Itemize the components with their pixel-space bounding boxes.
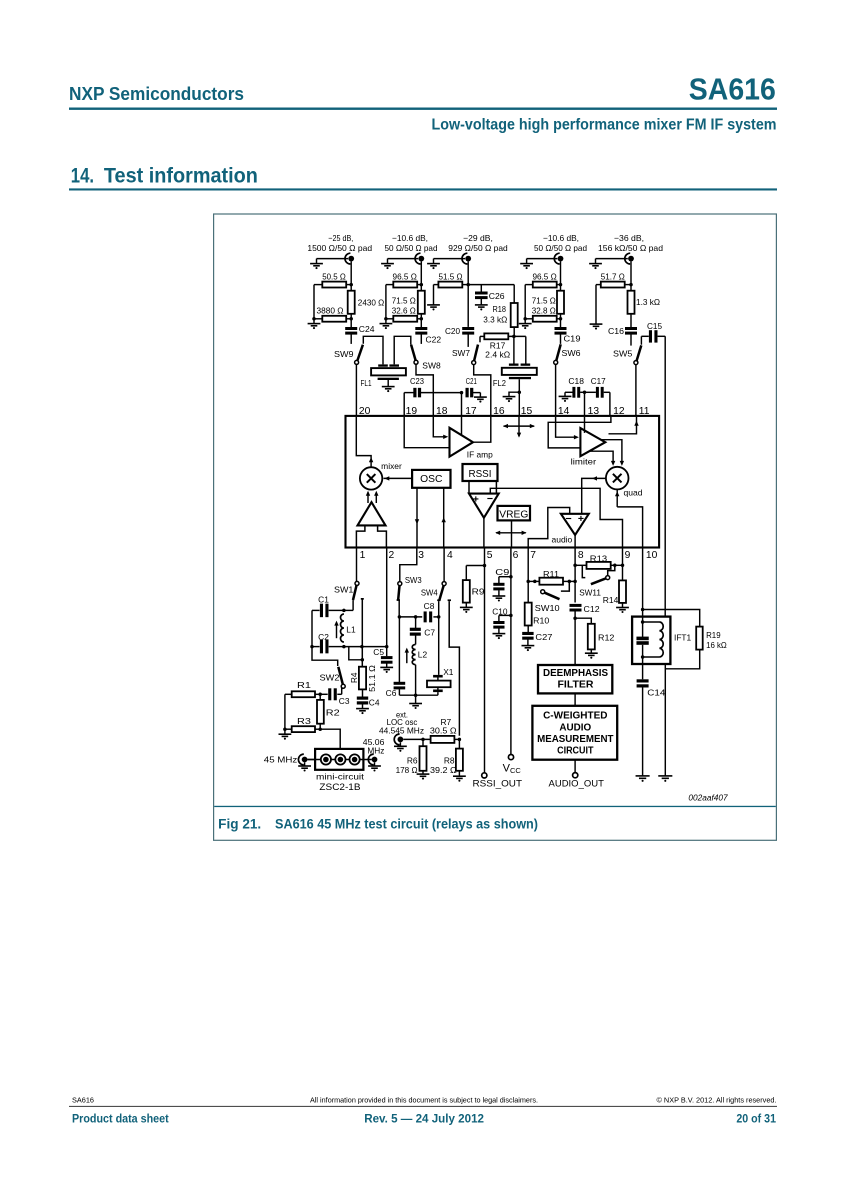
svg-text:6: 6	[513, 550, 519, 561]
svg-text:IFT1: IFT1	[674, 633, 692, 643]
svg-text:C23: C23	[410, 376, 424, 386]
svg-text:1: 1	[360, 550, 366, 561]
svg-text:−25 dB,: −25 dB,	[328, 233, 353, 243]
svg-text:Fig 21.: Fig 21.	[218, 817, 261, 832]
svg-text:71.5 Ω: 71.5 Ω	[532, 295, 556, 305]
svg-text:SW4: SW4	[421, 588, 438, 598]
svg-text:R3: R3	[297, 716, 311, 726]
svg-text:C18: C18	[568, 376, 584, 386]
svg-text:C1: C1	[318, 594, 329, 604]
svg-text:SW1: SW1	[334, 585, 354, 595]
svg-text:ZSC2-1B: ZSC2-1B	[319, 782, 360, 792]
svg-text:50.5 Ω: 50.5 Ω	[322, 272, 346, 282]
svg-text:R12: R12	[598, 632, 615, 642]
svg-text:39.2 Ω: 39.2 Ω	[430, 765, 457, 775]
svg-text:R6: R6	[407, 755, 418, 765]
svg-text:DEEMPHASIS: DEEMPHASIS	[543, 668, 608, 679]
svg-text:C24: C24	[359, 324, 375, 334]
svg-text:51.1 Ω: 51.1 Ω	[368, 665, 377, 692]
svg-text:18: 18	[436, 406, 448, 417]
svg-text:5: 5	[487, 550, 493, 561]
svg-text:20 of 31: 20 of 31	[736, 1112, 776, 1126]
svg-text:NXP Semiconductors: NXP Semiconductors	[69, 84, 244, 104]
svg-text:−: −	[487, 493, 493, 505]
svg-text:71.5 Ω: 71.5 Ω	[392, 295, 416, 305]
svg-text:Test information: Test information	[104, 164, 258, 188]
svg-text:R2: R2	[326, 707, 340, 717]
svg-text:51.7 Ω: 51.7 Ω	[601, 272, 625, 282]
svg-text:96.5 Ω: 96.5 Ω	[393, 272, 417, 282]
svg-text:SW3: SW3	[405, 575, 422, 585]
svg-text:SW2: SW2	[320, 672, 340, 682]
svg-text:RSSI: RSSI	[468, 469, 491, 480]
svg-text:96.5 Ω: 96.5 Ω	[532, 272, 556, 282]
svg-text:8: 8	[578, 550, 584, 561]
svg-text:SA616: SA616	[689, 73, 776, 107]
svg-text:178 Ω: 178 Ω	[396, 765, 418, 775]
svg-text:32.8 Ω: 32.8 Ω	[532, 306, 556, 316]
svg-text:CIRCUIT: CIRCUIT	[557, 746, 593, 757]
svg-text:IF amp: IF amp	[467, 450, 493, 459]
svg-text:4: 4	[447, 550, 453, 561]
svg-text:SW7: SW7	[452, 348, 470, 358]
svg-text:Rev. 5 — 24 July 2012: Rev. 5 — 24 July 2012	[364, 1112, 484, 1126]
svg-text:X1: X1	[443, 667, 454, 677]
svg-text:9: 9	[625, 550, 631, 561]
svg-text:FILTER: FILTER	[558, 680, 594, 691]
svg-text:45 MHz: 45 MHz	[264, 755, 298, 765]
svg-text:−10.6 dB,: −10.6 dB,	[543, 233, 579, 243]
svg-text:+: +	[578, 513, 584, 525]
svg-text:C22: C22	[426, 334, 442, 344]
svg-text:mixer: mixer	[381, 462, 402, 471]
svg-text:MHz: MHz	[367, 745, 384, 755]
svg-text:C27: C27	[535, 632, 552, 642]
svg-text:C9: C9	[495, 567, 509, 577]
svg-text:SW9: SW9	[334, 349, 354, 359]
svg-text:R19: R19	[706, 630, 721, 640]
svg-text:3: 3	[418, 550, 424, 561]
svg-text:L1: L1	[346, 624, 356, 634]
svg-text:R4: R4	[350, 672, 359, 683]
svg-text:C21: C21	[466, 376, 477, 386]
svg-text:OSC: OSC	[420, 474, 443, 485]
svg-text:−10.6 dB,: −10.6 dB,	[392, 233, 428, 243]
svg-text:19: 19	[406, 406, 418, 417]
svg-text:Product data sheet: Product data sheet	[72, 1112, 169, 1126]
svg-text:156 kΩ/50 Ω pad: 156 kΩ/50 Ω pad	[598, 243, 663, 253]
svg-text:R18: R18	[493, 304, 507, 314]
svg-text:1500 Ω/50 Ω pad: 1500 Ω/50 Ω pad	[307, 243, 372, 253]
svg-text:−36 dB,: −36 dB,	[614, 233, 644, 243]
svg-text:L2: L2	[418, 649, 428, 659]
svg-text:MEASUREMENT: MEASUREMENT	[537, 734, 613, 745]
svg-text:16: 16	[493, 406, 505, 417]
svg-text:C19: C19	[564, 334, 581, 344]
svg-text:VCC: VCC	[503, 763, 522, 775]
svg-text:SA616 45 MHz test circuit (rel: SA616 45 MHz test circuit (relays as sho…	[275, 817, 538, 832]
svg-text:AUDIO: AUDIO	[559, 722, 591, 733]
svg-text:14: 14	[558, 406, 570, 417]
svg-text:7: 7	[530, 550, 536, 561]
svg-text:929 Ω/50 Ω pad: 929 Ω/50 Ω pad	[448, 243, 508, 253]
svg-text:audio: audio	[552, 535, 573, 544]
svg-text:quad: quad	[624, 488, 643, 497]
svg-text:C3: C3	[339, 696, 350, 706]
svg-text:All information provided in th: All information provided in this documen…	[310, 1097, 538, 1104]
svg-text:50 Ω/50 Ω pad: 50 Ω/50 Ω pad	[385, 243, 438, 253]
svg-text:C26: C26	[489, 291, 505, 301]
svg-text:C15: C15	[647, 321, 662, 331]
svg-text:13: 13	[588, 406, 600, 417]
svg-text:C8: C8	[424, 601, 435, 611]
svg-text:−: −	[566, 513, 572, 525]
svg-text:10: 10	[646, 550, 658, 561]
svg-text:C4: C4	[369, 697, 380, 707]
svg-text:Low-voltage high performance m: Low-voltage high performance mixer FM IF…	[432, 117, 777, 134]
svg-text:3.3 kΩ: 3.3 kΩ	[483, 315, 507, 325]
svg-text:© NXP B.V. 2012. All rights re: © NXP B.V. 2012. All rights reserved.	[657, 1096, 777, 1104]
svg-text:12: 12	[613, 406, 625, 417]
svg-text:C12: C12	[584, 604, 600, 614]
svg-text:2: 2	[389, 550, 395, 561]
svg-text:C16: C16	[608, 326, 624, 336]
svg-text:mini-circuit: mini-circuit	[316, 772, 365, 782]
svg-text:C14: C14	[647, 688, 665, 698]
svg-text:16 kΩ: 16 kΩ	[706, 640, 727, 650]
svg-text:51.5 Ω: 51.5 Ω	[439, 272, 463, 282]
svg-text:C6: C6	[386, 688, 397, 698]
svg-text:+: +	[473, 494, 479, 506]
svg-text:002aaf407: 002aaf407	[688, 793, 728, 802]
svg-text:20: 20	[359, 406, 371, 417]
svg-text:50 Ω/50 Ω pad: 50 Ω/50 Ω pad	[534, 243, 587, 253]
svg-text:R14: R14	[603, 595, 619, 605]
svg-text:SW6: SW6	[562, 348, 581, 358]
svg-text:1.3 kΩ: 1.3 kΩ	[636, 297, 660, 307]
svg-text:−29 dB,: −29 dB,	[463, 233, 493, 243]
svg-text:AUDIO_OUT: AUDIO_OUT	[549, 778, 605, 788]
svg-text:14.: 14.	[71, 164, 94, 188]
svg-text:3880 Ω: 3880 Ω	[317, 306, 344, 316]
svg-text:C-WEIGHTED: C-WEIGHTED	[543, 711, 607, 722]
svg-text:30.5 Ω: 30.5 Ω	[430, 726, 457, 736]
svg-text:VREG: VREG	[499, 510, 528, 521]
svg-text:FL2: FL2	[493, 378, 506, 388]
svg-text:44.545 MHz: 44.545 MHz	[379, 726, 424, 736]
svg-text:SW11: SW11	[579, 587, 601, 597]
svg-text:RSSI_OUT: RSSI_OUT	[473, 778, 523, 788]
svg-text:2430 Ω: 2430 Ω	[358, 297, 384, 307]
svg-text:2.4 kΩ: 2.4 kΩ	[485, 350, 510, 360]
svg-text:R9: R9	[472, 587, 485, 597]
svg-text:limiter: limiter	[571, 458, 597, 467]
svg-text:32.6 Ω: 32.6 Ω	[392, 306, 416, 316]
svg-text:SW8: SW8	[422, 360, 441, 370]
svg-text:C20: C20	[445, 326, 460, 336]
svg-text:15: 15	[521, 406, 533, 417]
svg-text:FL1: FL1	[361, 378, 372, 388]
svg-text:C17: C17	[591, 376, 606, 386]
svg-text:11: 11	[639, 406, 650, 417]
svg-text:SW10: SW10	[535, 603, 560, 613]
svg-text:R1: R1	[297, 680, 311, 690]
svg-text:C7: C7	[424, 627, 435, 637]
svg-text:R8: R8	[444, 755, 455, 765]
svg-text:SA616: SA616	[72, 1097, 94, 1104]
svg-text:SW5: SW5	[613, 349, 633, 359]
svg-text:C5: C5	[373, 647, 384, 657]
svg-text:R10: R10	[533, 615, 549, 625]
svg-text:17: 17	[465, 406, 477, 417]
